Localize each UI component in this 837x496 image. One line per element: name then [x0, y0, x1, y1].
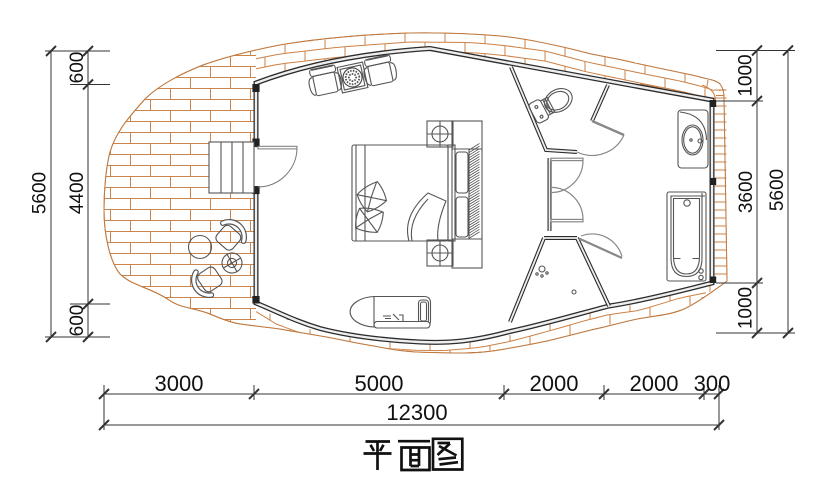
svg-text:300: 300 [694, 371, 731, 396]
svg-text:12300: 12300 [386, 400, 447, 425]
svg-text:2000: 2000 [530, 371, 579, 396]
svg-text:1000: 1000 [736, 54, 757, 96]
svg-text:600: 600 [67, 305, 88, 337]
svg-text:1000: 1000 [736, 287, 757, 329]
svg-text:5600: 5600 [767, 169, 788, 211]
svg-text:2000: 2000 [630, 371, 679, 396]
svg-text:3000: 3000 [155, 371, 204, 396]
svg-text:3600: 3600 [736, 171, 757, 213]
svg-text:5600: 5600 [30, 172, 51, 214]
svg-text:5000: 5000 [355, 371, 404, 396]
svg-text:600: 600 [67, 52, 88, 84]
svg-text:4400: 4400 [67, 172, 88, 214]
